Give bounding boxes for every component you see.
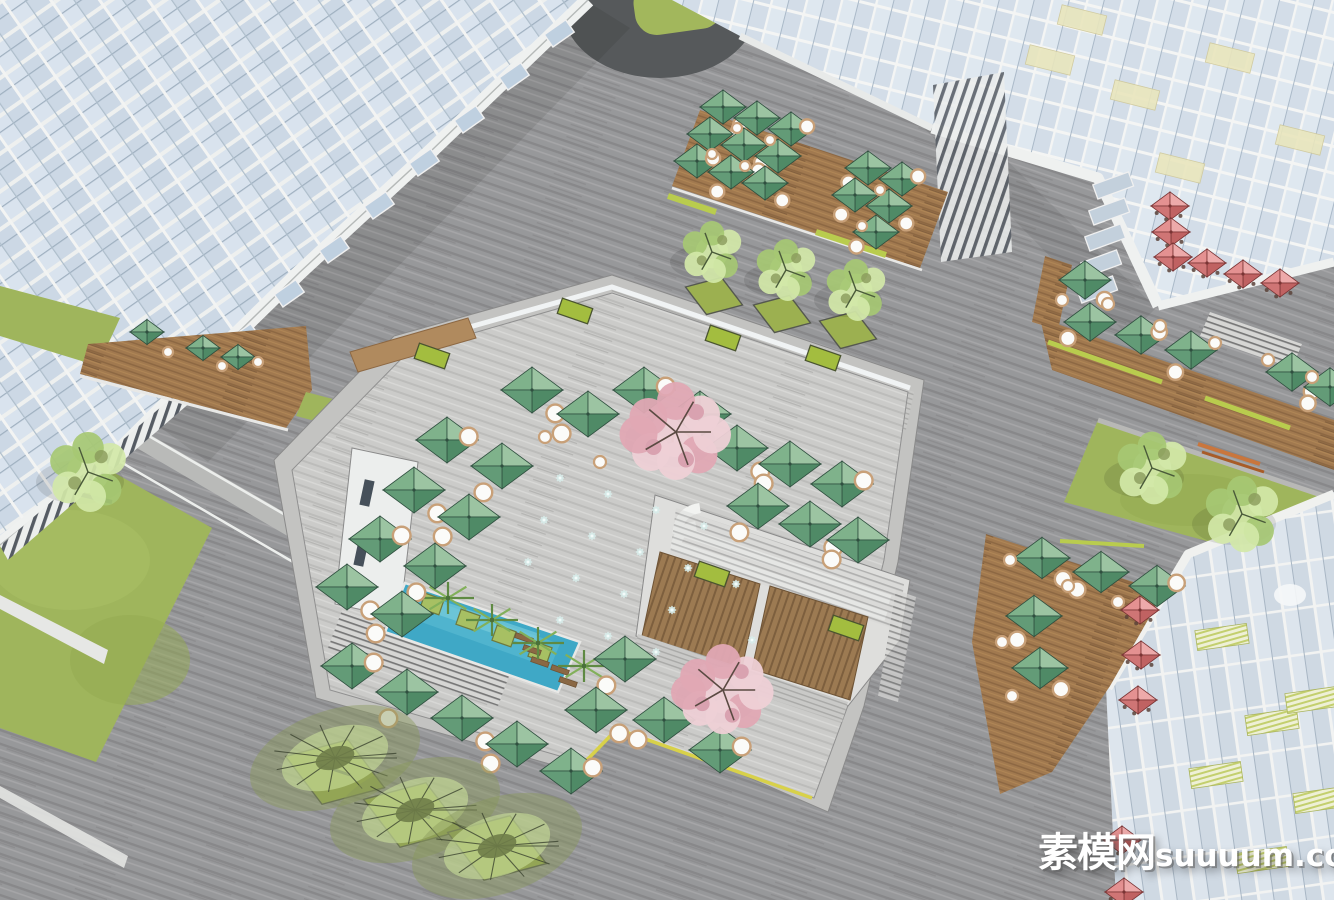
palm-plant bbox=[512, 627, 564, 659]
watermark: 素模网suuuum.com bbox=[1038, 820, 1334, 878]
fountain-jet bbox=[524, 558, 533, 567]
table bbox=[911, 169, 925, 183]
table bbox=[1112, 596, 1124, 608]
table bbox=[163, 347, 173, 357]
table bbox=[1062, 580, 1074, 592]
table bbox=[1053, 681, 1069, 697]
table bbox=[1154, 320, 1166, 332]
palm-plant bbox=[422, 582, 474, 614]
table bbox=[899, 216, 913, 230]
table bbox=[823, 551, 841, 569]
fountain-jet bbox=[604, 632, 613, 641]
table bbox=[765, 135, 775, 145]
table bbox=[731, 524, 749, 542]
table bbox=[594, 456, 606, 468]
watermark-cjk: 素模网 bbox=[1038, 830, 1155, 876]
fountain-jet bbox=[540, 516, 549, 525]
table bbox=[217, 361, 227, 371]
fountain-jet bbox=[572, 574, 581, 583]
fountain-jet bbox=[748, 636, 757, 645]
fountain-jet bbox=[556, 474, 565, 483]
table bbox=[434, 528, 452, 546]
table bbox=[584, 759, 602, 777]
fountain-jet bbox=[652, 648, 661, 657]
table bbox=[393, 527, 411, 545]
table bbox=[996, 636, 1008, 648]
table bbox=[1009, 632, 1025, 648]
table bbox=[460, 428, 478, 446]
table bbox=[1004, 554, 1016, 566]
palm-plant bbox=[466, 604, 518, 636]
table bbox=[849, 239, 863, 253]
table bbox=[1306, 371, 1318, 383]
table bbox=[732, 123, 742, 133]
table bbox=[1102, 298, 1114, 310]
table bbox=[629, 731, 647, 749]
fountain-jet bbox=[604, 490, 613, 499]
watermark-latin: suuuum.com bbox=[1155, 838, 1334, 874]
table bbox=[834, 208, 848, 222]
table bbox=[710, 185, 724, 199]
fountain-jet bbox=[700, 522, 709, 531]
table bbox=[553, 425, 571, 443]
lawn-dark-patch bbox=[70, 615, 190, 705]
colonnade bbox=[933, 72, 1012, 262]
table bbox=[610, 725, 628, 743]
table bbox=[1056, 294, 1068, 306]
table bbox=[475, 484, 493, 502]
glass-highlight bbox=[1274, 584, 1306, 606]
table bbox=[253, 357, 263, 367]
table bbox=[1006, 690, 1018, 702]
table bbox=[1262, 354, 1274, 366]
table bbox=[855, 472, 873, 490]
table bbox=[707, 149, 717, 159]
table bbox=[733, 738, 751, 756]
table bbox=[800, 119, 814, 133]
fountain-jet bbox=[556, 616, 565, 625]
table bbox=[1209, 337, 1221, 349]
table bbox=[1300, 396, 1315, 411]
table bbox=[875, 185, 885, 195]
fountain-jet bbox=[588, 532, 597, 541]
fountain-jet bbox=[636, 548, 645, 557]
fountain-jet bbox=[652, 506, 661, 515]
table bbox=[1168, 575, 1184, 591]
table bbox=[367, 625, 385, 643]
table bbox=[1168, 364, 1183, 379]
table bbox=[365, 654, 383, 672]
fountain-jet bbox=[620, 590, 629, 599]
table bbox=[857, 221, 867, 231]
table bbox=[539, 431, 551, 443]
table bbox=[775, 193, 789, 207]
fountain-jet bbox=[732, 580, 741, 589]
table bbox=[1060, 331, 1075, 346]
fountain-jet bbox=[684, 564, 693, 573]
table bbox=[740, 161, 750, 171]
rendering-canvas: 素模网suuuum.com bbox=[0, 0, 1334, 900]
plaza-3d-rendering bbox=[0, 0, 1334, 900]
fountain-jet bbox=[668, 606, 677, 615]
